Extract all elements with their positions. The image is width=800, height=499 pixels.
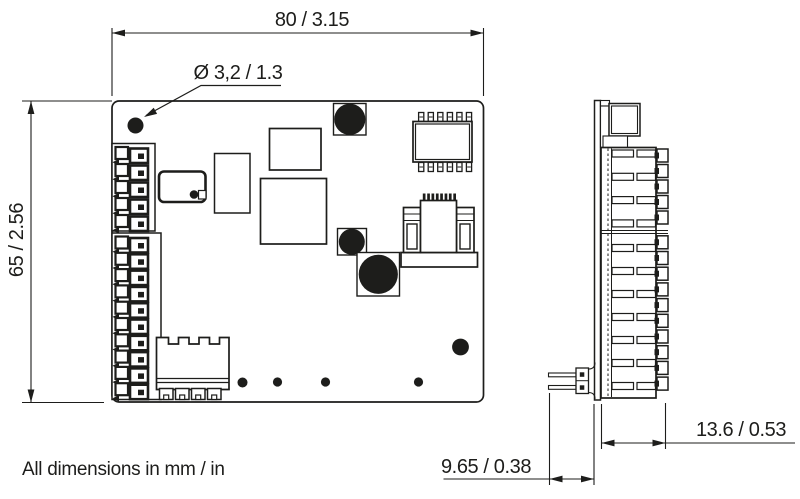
- via-dot: [321, 377, 330, 386]
- ic-chip: [413, 113, 472, 172]
- side-rj-connector: [601, 101, 641, 149]
- height-dimension: 65 / 2.56: [6, 101, 112, 403]
- terminal-block-upper: [112, 144, 155, 234]
- width-dimension-label: 80 / 3.15: [275, 9, 350, 31]
- component-rect-small: [270, 129, 322, 171]
- via-dot: [238, 378, 248, 388]
- side-pcb-edge: [595, 101, 601, 401]
- capacitor-large: [357, 253, 400, 297]
- capacitor-top: [334, 104, 367, 136]
- depth-dimension: 13.6 / 0.53: [602, 403, 796, 449]
- terminal-block-lower: [112, 233, 161, 402]
- width-dimension: 80 / 3.15: [112, 9, 484, 96]
- jumper-component: [159, 172, 206, 203]
- capacitor-small: [338, 229, 367, 256]
- side-view: [549, 101, 669, 401]
- pin-dimension-label: 9.65 / 0.38: [441, 456, 531, 478]
- drawing-canvas: 80 / 3.15 65 / 2.56 Ø 3,2 / 1.3 13.6 / 0…: [0, 0, 800, 499]
- mounting-hole: [128, 118, 144, 134]
- front-view: [112, 101, 484, 402]
- pcb-dimensional-drawing: 80 / 3.15 65 / 2.56 Ø 3,2 / 1.3 13.6 / 0…: [0, 0, 800, 499]
- hole-annotation-label: Ø 3,2 / 1.3: [194, 62, 283, 84]
- bottom-connector: [157, 338, 230, 400]
- depth-dimension-label: 13.6 / 0.53: [696, 419, 786, 441]
- component-rect-tall: [215, 154, 251, 214]
- component-rect-large: [261, 179, 327, 245]
- via-dot: [414, 377, 423, 386]
- pin-dimension: 9.65 / 0.38: [441, 393, 594, 485]
- side-connector-pins: [549, 363, 596, 400]
- height-dimension-label: 65 / 2.56: [6, 203, 28, 278]
- via-dot-large: [452, 339, 469, 356]
- via-dot: [273, 377, 282, 386]
- side-terminal-block: [601, 148, 668, 399]
- units-note: All dimensions in mm / in: [22, 459, 225, 480]
